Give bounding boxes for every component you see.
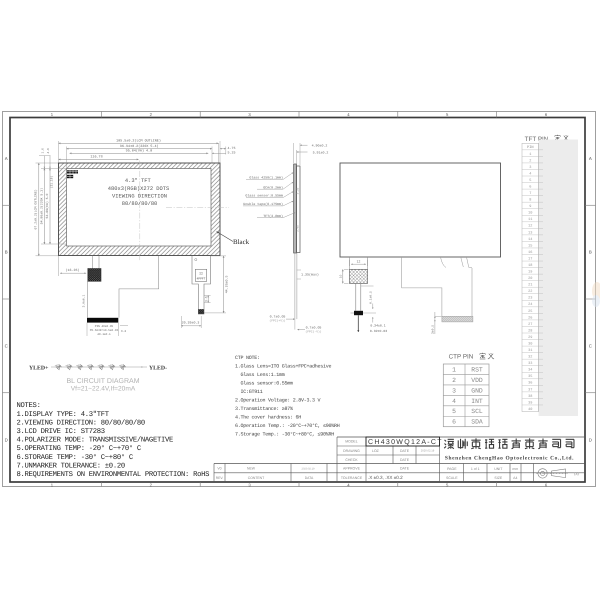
svg-text:1: 1 <box>452 366 456 373</box>
svg-text:INT: INT <box>471 398 483 405</box>
svg-text:35: 35 <box>528 374 532 379</box>
svg-text:5: 5 <box>529 178 531 183</box>
svg-text:A: A <box>589 156 592 161</box>
svg-text:37: 37 <box>528 387 532 392</box>
svg-text:0.34±0.1: 0.34±0.1 <box>370 323 385 327</box>
svg-text:YLED-: YLED- <box>149 365 167 371</box>
svg-text:39: 39 <box>528 400 532 405</box>
svg-text:95.04(VA) 4.0: 95.04(VA) 4.0 <box>126 149 152 154</box>
svg-text:38: 38 <box>528 394 532 399</box>
svg-text:20.39±0.3: 20.39±0.3 <box>182 320 200 324</box>
svg-text:4.POLARIZER MODE: TRANSMISSIVE: 4.POLARIZER MODE: TRANSMISSIVE/NAGETIVE <box>17 436 174 445</box>
svg-text:Glass 4250(1.1mm): Glass 4250(1.1mm) <box>249 176 283 180</box>
svg-text:6.Operation Temp.: -20°C~+70°C: 6.Operation Temp.: -20°C~+70°C, ≤90%RH <box>235 423 340 429</box>
svg-text:4.The cover hardness: 6H: 4.The cover hardness: 6H <box>235 415 301 421</box>
svg-text:23: 23 <box>528 296 532 301</box>
svg-text:Shenzhen ChengHao Optoelectron: Shenzhen ChengHao Optoelectronic Co.,Ltd… <box>445 455 574 461</box>
svg-text:5.OPERATING TEMP: -20° C~+70°: 5.OPERATING TEMP: -20° C~+70° C <box>17 445 142 453</box>
svg-text:33: 33 <box>528 361 532 366</box>
svg-text:3.Transmittance: ≥87%: 3.Transmittance: ≥87% <box>235 406 293 412</box>
svg-text:CONTENT: CONTENT <box>248 476 264 480</box>
svg-text:RST: RST <box>471 366 483 373</box>
svg-text:17: 17 <box>528 256 532 261</box>
svg-text:OCA(0.2mm): OCA(0.2mm) <box>263 185 283 189</box>
svg-text:VDD: VDD <box>471 377 483 384</box>
svg-text:Vf=21~22.4V,If=20mA: Vf=21~22.4V,If=20mA <box>71 386 136 393</box>
svg-text:1 of 1: 1 of 1 <box>471 467 480 471</box>
svg-text:6.STORAGE TEMP: -30° C~+80° C: 6.STORAGE TEMP: -30° C~+80° C <box>17 454 134 462</box>
svg-text:32: 32 <box>528 355 532 360</box>
svg-text:I2: I2 <box>199 271 203 275</box>
svg-text:Glass sensor:0.55mm: Glass sensor:0.55mm <box>241 380 294 386</box>
svg-text:.X ±0.3, .XX ±0.2: .X ±0.3, .XX ±0.2 <box>368 475 403 480</box>
svg-text:CH430WQ12A-CT: CH430WQ12A-CT <box>368 439 443 446</box>
svg-text:LOZ: LOZ <box>372 449 380 453</box>
svg-text:67.2±0.2(LCM OUTLINE): 67.2±0.2(LCM OUTLINE) <box>34 189 38 229</box>
svg-text:44.26±0.5: 44.26±0.5 <box>224 275 228 293</box>
svg-text:8: 8 <box>529 198 531 203</box>
svg-text:3.LCD DRIVE IC: ST7283: 3.LCD DRIVE IC: ST7283 <box>17 428 105 436</box>
svg-text:480x3(RGB)X272 DOTS: 480x3(RGB)X272 DOTS <box>108 186 169 192</box>
svg-text:SCALE: SCALE <box>446 476 458 480</box>
svg-text:2.Operation Voltage: 2.8V-3.3: 2.Operation Voltage: 2.8V-3.3 V <box>235 397 321 403</box>
svg-text:0.7±0.05: 0.7±0.05 <box>270 314 286 318</box>
svg-text:3±0.5: 3±0.5 <box>431 325 434 334</box>
svg-text:5.5: 5.5 <box>205 296 208 302</box>
svg-text:1.DISPLAY TYPE: 4.3"TFT: 1.DISPLAY TYPE: 4.3"TFT <box>17 410 110 419</box>
svg-text:10: 10 <box>339 274 342 278</box>
svg-text:21: 21 <box>528 283 532 288</box>
svg-text:96.94±0.2(220X 5.4): 96.94±0.2(220X 5.4) <box>120 144 159 149</box>
svg-text:REV.: REV. <box>216 476 224 480</box>
svg-text:2.VIEWING DIRECTION: 80/80/80/: 2.VIEWING DIRECTION: 80/80/80/80 <box>17 418 145 427</box>
svg-text:0.32±0.03: 0.32±0.03 <box>370 329 387 333</box>
svg-text:C: C <box>589 344 592 349</box>
svg-text:34: 34 <box>528 368 532 373</box>
svg-text:SIZE: SIZE <box>494 476 502 480</box>
svg-text:TOLERANCE: TOLERANCE <box>341 476 363 480</box>
svg-text:MODEL: MODEL <box>345 440 358 444</box>
svg-text:mm: mm <box>512 467 518 471</box>
svg-text:40: 40 <box>528 407 532 412</box>
svg-text:5.91±0.2: 5.91±0.2 <box>313 150 329 154</box>
svg-text:80/80/80/80: 80/80/80/80 <box>122 201 158 207</box>
svg-text:4.90±0.2: 4.90±0.2 <box>312 144 328 148</box>
svg-text:8.REQUIREMENTS ON ENVIRONMENTA: 8.REQUIREMENTS ON ENVIRONMENTAL PROTECTI… <box>17 471 210 479</box>
svg-text:(FPC(+V)): (FPC(+V)) <box>269 319 285 323</box>
svg-text:NEW: NEW <box>247 467 256 471</box>
svg-text:6: 6 <box>452 419 456 426</box>
svg-text:SDA: SDA <box>471 419 483 426</box>
svg-text:DATE: DATE <box>400 467 410 471</box>
svg-text:PIN: PIN <box>527 145 533 150</box>
svg-text:1: 1 <box>529 152 531 157</box>
svg-text:PIN 40±0.05: PIN 40±0.05 <box>95 325 114 328</box>
svg-text:Black: Black <box>233 239 250 246</box>
svg-text:24: 24 <box>528 302 532 307</box>
svg-text:105.5±0.2(LCM OUTLINE): 105.5±0.2(LCM OUTLINE) <box>116 139 161 144</box>
svg-text:2.05: 2.05 <box>297 225 300 232</box>
svg-text:4: 4 <box>452 398 456 405</box>
svg-text:B: B <box>5 250 8 255</box>
svg-text:26: 26 <box>528 315 532 320</box>
svg-text:Glass sensor:0.55mm: Glass sensor:0.55mm <box>245 194 283 198</box>
svg-text:TFT(3.8mm): TFT(3.8mm) <box>263 214 283 218</box>
svg-text:P0.5X39=19.5±0.05: P0.5X39=19.5±0.05 <box>90 329 119 332</box>
svg-text:Glass Lens:1.1mm: Glass Lens:1.1mm <box>241 372 285 378</box>
svg-text:3.0±0.1: 3.0±0.1 <box>82 295 85 308</box>
svg-text:(FPC(-V)): (FPC(-V)) <box>305 330 321 334</box>
svg-text:V0: V0 <box>217 467 221 471</box>
svg-text:4.6: 4.6 <box>47 148 50 154</box>
svg-text:28: 28 <box>528 328 532 333</box>
svg-text:20: 20 <box>528 276 532 281</box>
svg-text:2020.02.19: 2020.02.19 <box>421 450 435 453</box>
svg-text:18: 18 <box>528 263 532 268</box>
svg-text:4PPFT: 4PPFT <box>196 278 205 281</box>
svg-text:0.7±0.05: 0.7±0.05 <box>306 325 322 329</box>
svg-text:(3): (3) <box>574 472 579 476</box>
svg-text:2: 2 <box>452 377 456 384</box>
svg-text:APPROVE: APPROVE <box>343 467 361 471</box>
svg-text:9: 9 <box>529 204 531 209</box>
svg-text:5: 5 <box>452 408 456 415</box>
svg-text:IC:GT911: IC:GT911 <box>241 389 263 395</box>
svg-text:D: D <box>5 437 8 442</box>
svg-text:0.1±0.5: 0.1±0.5 <box>370 291 373 304</box>
svg-text:3.2: 3.2 <box>121 330 127 333</box>
svg-text:2020.02.19: 2020.02.19 <box>302 467 316 470</box>
svg-text:(31.18): (31.18) <box>50 176 54 189</box>
svg-text:B: B <box>589 250 592 255</box>
svg-text:7: 7 <box>529 191 531 196</box>
svg-text:7.UNMARKER TOLERANCE: ±0.20: 7.UNMARKER TOLERANCE: ±0.20 <box>17 462 125 470</box>
svg-text:6: 6 <box>529 184 531 189</box>
svg-text:D: D <box>589 437 592 442</box>
svg-text:VIEWING DIRECTION: VIEWING DIRECTION <box>112 194 167 200</box>
svg-text:1.35(max): 1.35(max) <box>301 273 319 277</box>
svg-text:BL CIRCUIT DIAGRAM: BL CIRCUIT DIAGRAM <box>66 378 139 385</box>
svg-text:A4: A4 <box>513 476 517 480</box>
svg-text:53.86(VA) 5.0: 53.86(VA) 5.0 <box>45 193 49 218</box>
svg-text:54.86±0.2(220X 5.1): 54.86±0.2(220X 5.1) <box>39 188 43 224</box>
svg-text:13: 13 <box>528 230 532 235</box>
svg-text:CHECK: CHECK <box>345 458 358 462</box>
svg-text:12: 12 <box>357 260 361 264</box>
svg-text:12: 12 <box>528 224 532 229</box>
svg-text:4.75: 4.75 <box>228 146 236 150</box>
svg-text:29: 29 <box>528 335 532 340</box>
svg-text:CTP NOTE:: CTP NOTE: <box>235 355 260 361</box>
svg-text:CTP PIN: CTP PIN <box>449 354 474 361</box>
svg-text:10: 10 <box>528 211 532 216</box>
svg-text:C: C <box>5 344 8 349</box>
svg-text:2: 2 <box>529 158 531 163</box>
svg-text:5.25: 5.25 <box>228 151 236 155</box>
svg-text:116.78: 116.78 <box>90 155 102 160</box>
svg-text:GND: GND <box>471 387 483 394</box>
svg-text:7.Storage Temp.: -30°C~+80°C,: 7.Storage Temp.: -30°C~+80°C, ≤90%RH <box>235 432 334 438</box>
svg-text:11: 11 <box>528 217 532 222</box>
svg-text:SCL: SCL <box>471 408 483 415</box>
svg-text:25: 25 <box>528 309 532 314</box>
svg-text:PAGE: PAGE <box>447 467 457 471</box>
svg-text:15: 15 <box>528 243 532 248</box>
svg-text:DATE: DATE <box>400 449 410 453</box>
svg-text:22: 22 <box>528 289 532 294</box>
svg-text:(16.35): (16.35) <box>66 268 80 272</box>
svg-text:31: 31 <box>528 348 532 353</box>
svg-text:40.1±0.1: 40.1±0.1 <box>97 333 111 336</box>
svg-text:4: 4 <box>529 171 531 176</box>
svg-text:A: A <box>5 156 8 161</box>
svg-text:1.6: 1.6 <box>41 148 44 154</box>
svg-text:30: 30 <box>528 341 532 346</box>
svg-text:36: 36 <box>528 381 532 386</box>
svg-text:NOTES:: NOTES: <box>17 402 41 410</box>
svg-text:14: 14 <box>528 237 532 242</box>
svg-text:Double tape(0.175mm): Double tape(0.175mm) <box>243 202 283 206</box>
svg-text:DATA: DATA <box>305 476 314 480</box>
svg-text:3: 3 <box>452 387 456 394</box>
svg-text:DRAWING: DRAWING <box>343 449 360 453</box>
svg-text:19: 19 <box>528 270 532 275</box>
svg-text:3.25: 3.25 <box>297 187 300 194</box>
svg-text:DATE: DATE <box>400 458 410 462</box>
svg-text:4.3" TFT: 4.3" TFT <box>125 178 152 184</box>
svg-text:3: 3 <box>529 165 531 170</box>
svg-text:YLED+: YLED+ <box>29 365 48 371</box>
svg-text:16: 16 <box>528 250 532 255</box>
svg-text:UNIT: UNIT <box>494 467 503 471</box>
svg-text:1.Glass Lens=ITO Glass+FPC+adh: 1.Glass Lens=ITO Glass+FPC+adhesive <box>235 363 332 369</box>
svg-text:27: 27 <box>528 322 532 327</box>
